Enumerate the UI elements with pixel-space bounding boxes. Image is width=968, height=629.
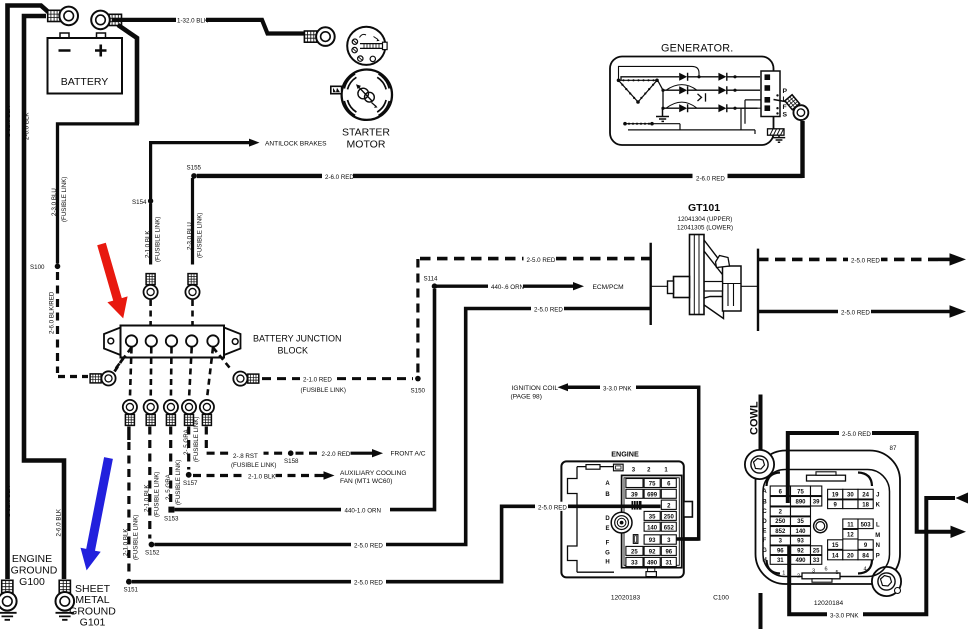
svg-text:METAL: METAL <box>75 594 109 606</box>
svg-text:2-1.0 BLK: 2-1.0 BLK <box>248 474 276 481</box>
svg-text:2-5.0 RED: 2-5.0 RED <box>534 307 563 314</box>
svg-text:S157: S157 <box>183 480 198 487</box>
svg-text:30: 30 <box>847 493 854 499</box>
svg-text:S158: S158 <box>284 458 299 465</box>
svg-text:93: 93 <box>797 539 804 545</box>
svg-text:852: 852 <box>775 529 786 535</box>
svg-text:GROUND: GROUND <box>11 565 58 577</box>
svg-text:2-1.0 RED: 2-1.0 RED <box>303 376 332 383</box>
svg-text:2-1.0 BLK: 2-1.0 BLK <box>123 528 130 556</box>
svg-text:2-6.0 RED: 2-6.0 RED <box>696 175 725 182</box>
svg-text:19: 19 <box>832 493 839 499</box>
svg-text:G: G <box>605 551 610 557</box>
svg-text:31: 31 <box>777 558 784 564</box>
svg-text:39: 39 <box>813 500 820 506</box>
svg-text:E: E <box>605 526 609 532</box>
svg-text:6: 6 <box>824 567 827 573</box>
svg-text:G100: G100 <box>19 576 45 588</box>
svg-text:25: 25 <box>813 548 820 554</box>
svg-text:P: P <box>783 88 788 95</box>
svg-text:92: 92 <box>797 548 804 554</box>
svg-text:G: G <box>762 548 767 554</box>
svg-text:3: 3 <box>812 569 815 575</box>
svg-text:MOTOR: MOTOR <box>347 139 386 151</box>
svg-text:FAN (MT1 WC60): FAN (MT1 WC60) <box>340 478 392 485</box>
svg-text:2-5.0 RED: 2-5.0 RED <box>538 504 567 511</box>
svg-text:GT101: GT101 <box>688 202 720 214</box>
svg-text:AUXILIARY COOLING: AUXILIARY COOLING <box>340 470 406 477</box>
svg-text:A: A <box>605 481 610 487</box>
svg-text:2-5.0 RED: 2-5.0 RED <box>354 543 383 550</box>
svg-text:S153: S153 <box>164 516 179 523</box>
svg-text:2-3.0 BLU: 2-3.0 BLU <box>51 188 58 216</box>
svg-text:2-6.0 BLK: 2-6.0 BLK <box>56 508 63 536</box>
svg-text:2-6.0 RED: 2-6.0 RED <box>325 174 354 181</box>
svg-text:F: F <box>606 540 610 546</box>
svg-text:3-3.0 PNK: 3-3.0 PNK <box>603 385 632 392</box>
svg-text:F: F <box>783 104 787 111</box>
svg-text:2: 2 <box>797 574 800 580</box>
svg-text:250: 250 <box>664 515 675 521</box>
svg-text:M: M <box>875 533 880 539</box>
svg-text:39: 39 <box>631 493 638 499</box>
svg-text:S154: S154 <box>132 199 147 206</box>
svg-text:(FUSIBLE LINK): (FUSIBLE LINK) <box>301 387 346 394</box>
svg-text:503: 503 <box>861 522 872 528</box>
svg-text:12041304 (UPPER): 12041304 (UPPER) <box>678 216 733 223</box>
svg-text:35: 35 <box>649 515 656 521</box>
svg-text:250: 250 <box>775 519 786 525</box>
svg-text:STARTER: STARTER <box>342 127 390 139</box>
svg-text:F: F <box>763 538 767 544</box>
svg-text:75: 75 <box>797 489 804 495</box>
svg-text:699: 699 <box>647 493 658 499</box>
svg-text:20: 20 <box>847 554 854 560</box>
svg-text:BATTERY JUNCTION: BATTERY JUNCTION <box>253 334 342 344</box>
svg-text:96: 96 <box>777 548 784 554</box>
svg-text:2-3.0 BLU: 2-3.0 BLU <box>186 222 193 250</box>
svg-text:(FUSIBLE LINK): (FUSIBLE LINK) <box>193 417 200 462</box>
svg-text:2-5.0 RED: 2-5.0 RED <box>842 431 871 438</box>
svg-text:33: 33 <box>631 561 638 567</box>
svg-text:2-1.0 BLK: 2-1.0 BLK <box>144 484 151 512</box>
svg-text:2-5.0 RED: 2-5.0 RED <box>354 580 383 587</box>
svg-text:J: J <box>876 493 879 499</box>
svg-text:D: D <box>762 519 767 525</box>
svg-text:IGNITION COIL: IGNITION COIL <box>512 385 559 392</box>
svg-text:15: 15 <box>832 543 839 549</box>
svg-text:3-3.0 PNK: 3-3.0 PNK <box>830 612 859 619</box>
svg-text:H: H <box>605 559 609 565</box>
svg-text:11: 11 <box>847 522 854 528</box>
svg-text:ECM/PCM: ECM/PCM <box>593 284 624 291</box>
svg-text:S100: S100 <box>30 264 45 271</box>
svg-text:2-1.0 BLK: 2-1.0 BLK <box>144 230 151 258</box>
svg-text:93: 93 <box>649 538 656 544</box>
svg-text:12020184: 12020184 <box>814 600 844 607</box>
svg-text:140: 140 <box>647 525 658 531</box>
svg-text:12020183: 12020183 <box>611 595 641 602</box>
svg-text:(FUSIBLE LINK): (FUSIBLE LINK) <box>61 177 68 222</box>
svg-text:B: B <box>762 500 767 506</box>
svg-text:4: 4 <box>863 567 866 573</box>
svg-text:S155: S155 <box>187 165 202 172</box>
svg-text:ENGINE: ENGINE <box>12 553 52 565</box>
svg-text:96: 96 <box>665 550 672 556</box>
svg-text:2-6.0 BLK: 2-6.0 BLK <box>24 112 31 140</box>
svg-text:(FUSIBLE LINK): (FUSIBLE LINK) <box>231 462 276 469</box>
svg-text:652: 652 <box>664 525 675 531</box>
svg-text:18: 18 <box>862 502 869 508</box>
svg-text:87: 87 <box>890 445 897 452</box>
svg-text:2-.5 GRA: 2-.5 GRA <box>165 473 172 500</box>
svg-text:490: 490 <box>647 561 658 567</box>
svg-text:H: H <box>762 557 766 563</box>
svg-text:490: 490 <box>795 558 806 564</box>
svg-text:2-5.0 RED: 2-5.0 RED <box>841 310 870 317</box>
svg-text:33: 33 <box>813 558 820 564</box>
svg-text:S152: S152 <box>145 550 160 557</box>
svg-text:2-5.0 RED: 2-5.0 RED <box>527 257 556 264</box>
svg-text:G101: G101 <box>80 617 106 629</box>
svg-text:1-32.0 BLK: 1-32.0 BLK <box>5 105 12 137</box>
svg-text:(FUSIBLE LINK): (FUSIBLE LINK) <box>196 213 203 258</box>
svg-text:E: E <box>762 528 766 534</box>
svg-text:1-32.0 BLK: 1-32.0 BLK <box>5 485 12 517</box>
svg-text:12041305 (LOWER): 12041305 (LOWER) <box>677 224 733 231</box>
svg-text:(FUSIBLE LINK): (FUSIBLE LINK) <box>175 460 182 505</box>
svg-text:C: C <box>762 509 767 515</box>
svg-text:N: N <box>876 543 880 549</box>
svg-text:(FUSIBLE LINK): (FUSIBLE LINK) <box>154 217 161 262</box>
svg-text:(PAGE 98): (PAGE 98) <box>511 393 542 400</box>
svg-text:S: S <box>783 112 788 119</box>
svg-text:440-1.0 ORN: 440-1.0 ORN <box>345 508 381 515</box>
svg-text:92: 92 <box>649 550 656 556</box>
svg-text:S151: S151 <box>124 587 139 594</box>
svg-text:P: P <box>876 553 880 559</box>
svg-text:75: 75 <box>649 482 656 488</box>
svg-text:K: K <box>876 503 881 509</box>
svg-text:ENGINE: ENGINE <box>611 449 639 458</box>
svg-text:1: 1 <box>782 571 785 577</box>
svg-text:35: 35 <box>797 519 804 525</box>
svg-text:(FUSIBLE LINK): (FUSIBLE LINK) <box>133 515 140 560</box>
svg-text:2-.8 RST: 2-.8 RST <box>233 453 258 460</box>
svg-text:140: 140 <box>795 529 806 535</box>
svg-text:FRONT A/C: FRONT A/C <box>391 451 426 458</box>
svg-text:BLOCK: BLOCK <box>278 346 309 356</box>
svg-text:24: 24 <box>862 493 869 499</box>
svg-text:2-2.0 RED: 2-2.0 RED <box>322 451 351 458</box>
svg-text:A: A <box>762 489 767 495</box>
svg-text:440-.6 ORN: 440-.6 ORN <box>491 284 524 291</box>
svg-text:890: 890 <box>795 500 806 506</box>
svg-text:BATTERY: BATTERY <box>61 76 108 88</box>
svg-text:C100: C100 <box>713 594 729 601</box>
svg-text:L: L <box>876 523 880 529</box>
svg-text:GENERATOR.: GENERATOR. <box>661 43 733 55</box>
svg-text:1-32.0 BLK: 1-32.0 BLK <box>177 18 209 25</box>
svg-text:14: 14 <box>832 554 839 560</box>
svg-text:B: B <box>605 492 610 498</box>
svg-text:S114: S114 <box>424 276 439 283</box>
svg-text:(FUSIBLE LINK): (FUSIBLE LINK) <box>154 472 161 517</box>
svg-text:2-6.0 BLK/RED: 2-6.0 BLK/RED <box>49 291 56 334</box>
svg-text:S150: S150 <box>411 388 426 395</box>
svg-text:12: 12 <box>847 533 854 539</box>
svg-text:25: 25 <box>631 550 638 556</box>
svg-text:2-.5 GRA: 2-.5 GRA <box>183 428 190 455</box>
svg-text:84: 84 <box>862 554 869 560</box>
svg-text:31: 31 <box>665 561 672 567</box>
svg-text:ANTILOCK BRAKES: ANTILOCK BRAKES <box>265 140 327 147</box>
svg-text:D: D <box>605 516 610 522</box>
svg-text:2-5.0 RED: 2-5.0 RED <box>851 258 880 265</box>
svg-text:5: 5 <box>835 570 838 576</box>
